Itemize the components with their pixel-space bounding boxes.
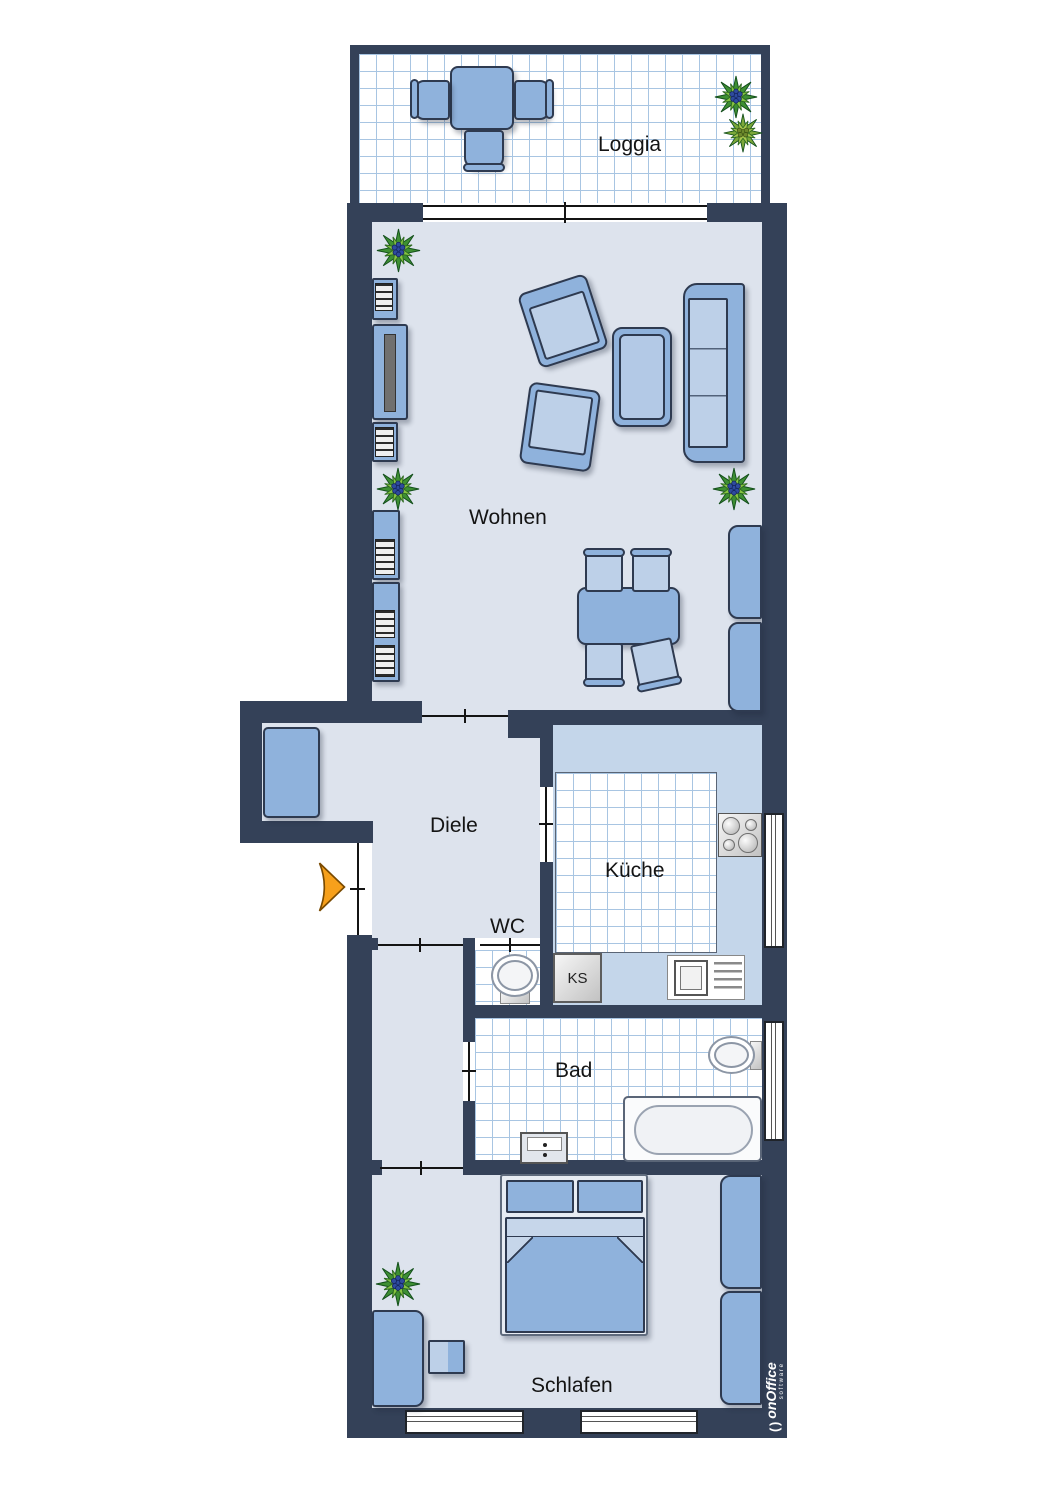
measure-tick <box>420 1161 422 1175</box>
room-label-schlafen: Schlafen <box>531 1374 613 1398</box>
dining-table <box>577 587 680 645</box>
toilet-bowl <box>714 1042 749 1068</box>
stove-burner <box>745 819 757 831</box>
stove-burner <box>738 833 758 853</box>
onoffice-logo-icon: ( ) <box>767 1423 782 1432</box>
measure-tick <box>564 202 566 223</box>
sofa <box>683 283 745 463</box>
pillow <box>577 1180 643 1213</box>
coffee-table <box>612 327 672 427</box>
plant-icon <box>722 112 764 154</box>
pillow <box>506 1180 574 1213</box>
window-bad <box>764 1021 784 1141</box>
onoffice-logo-tagline: software <box>779 1362 785 1419</box>
armchair <box>519 381 602 472</box>
shelf-contents <box>375 283 393 311</box>
wall-segment <box>360 938 378 950</box>
bed-sheet-strip <box>507 1219 643 1237</box>
room-label-wc: WC <box>490 915 525 939</box>
measure-tick <box>419 938 421 952</box>
armchair-seat <box>528 389 594 455</box>
sink-drainer <box>714 962 742 994</box>
floorplan-canvas: KS <box>0 0 1060 1500</box>
wall-segment <box>707 203 787 222</box>
loggia-chair <box>464 130 504 168</box>
shelf-contents <box>375 610 395 638</box>
washbasin <box>520 1132 568 1164</box>
bathtub-inner <box>634 1105 753 1155</box>
faucet-dot <box>543 1143 547 1147</box>
wall-segment <box>540 862 553 1005</box>
measure-tick <box>462 1070 476 1072</box>
measure-tick <box>350 888 365 890</box>
tv-sideboard <box>372 324 408 420</box>
shelf-contents <box>375 539 395 575</box>
wall-segment <box>347 935 372 1408</box>
toilet <box>708 1036 755 1074</box>
wall-segment <box>347 203 372 701</box>
wall-segment <box>540 710 787 725</box>
chair-back <box>410 79 419 119</box>
room-label-diele: Diele <box>430 814 478 838</box>
room-label-loggia: Loggia <box>598 133 661 157</box>
toilet <box>491 954 539 997</box>
chair-back <box>630 548 672 557</box>
wall-cabinet <box>728 622 762 712</box>
onoffice-logo-name: onOffice <box>764 1362 778 1419</box>
wall-cabinet <box>728 525 762 619</box>
stove-burner <box>723 839 735 851</box>
wardrobe <box>720 1175 762 1289</box>
chair-back <box>583 678 625 687</box>
shelf-contents <box>375 427 394 457</box>
wall-segment <box>463 938 475 1042</box>
sofa-seat <box>688 298 728 448</box>
plant-icon <box>375 227 422 274</box>
wardrobe <box>720 1291 762 1405</box>
chair-back <box>463 163 505 172</box>
fridge-label: KS <box>567 970 587 987</box>
window-kueche <box>764 813 784 948</box>
dining-chair <box>632 552 670 592</box>
faucet-dot <box>543 1153 547 1157</box>
wall-segment <box>463 1005 787 1018</box>
dining-chair <box>630 637 680 689</box>
measure-tick <box>539 823 553 825</box>
room-label-bad: Bad <box>555 1059 592 1083</box>
armchair-seat <box>528 290 600 360</box>
wall-segment <box>350 45 359 203</box>
wall-segment <box>350 45 770 54</box>
fridge: KS <box>553 953 602 1003</box>
wall-segment <box>463 1160 787 1175</box>
mattress <box>505 1217 645 1333</box>
stove <box>718 813 762 857</box>
plant-icon <box>375 466 421 512</box>
wall-segment <box>540 725 553 787</box>
shelf <box>372 582 400 682</box>
room-label-wohnen: Wohnen <box>469 506 547 530</box>
loggia-table <box>450 66 514 130</box>
window-schlafen-right <box>580 1410 698 1434</box>
measure-tick <box>509 938 511 952</box>
wall-segment <box>240 821 373 843</box>
desk <box>372 1310 424 1407</box>
plant-icon <box>374 1260 422 1308</box>
bathtub <box>623 1096 762 1162</box>
onoffice-logo: ( ) onOffice software <box>760 1322 788 1432</box>
window-schlafen-left <box>405 1410 524 1434</box>
entrance-arrow-icon <box>316 860 348 914</box>
sheet-fold <box>617 1237 643 1263</box>
kitchen-sink-unit <box>667 955 745 1000</box>
tv-screen <box>384 334 396 412</box>
shelf-contents <box>375 645 395 677</box>
desk-chair <box>428 1340 465 1374</box>
loggia-chair <box>514 80 550 120</box>
hall-wardrobe <box>263 727 320 818</box>
floor-corridor <box>372 938 463 1175</box>
shelf <box>372 510 400 580</box>
measure-tick <box>464 709 466 723</box>
wall-segment <box>463 1101 475 1162</box>
shelf <box>372 422 398 462</box>
floor-loggia <box>359 54 761 203</box>
chair-back <box>583 548 625 557</box>
coffee-table-top <box>619 334 665 420</box>
room-label-kueche: Küche <box>605 859 665 883</box>
loggia-chair <box>414 80 450 120</box>
sink-basin-inner <box>680 966 702 990</box>
plant-icon <box>711 466 757 512</box>
wall-segment <box>240 701 422 723</box>
shelf <box>372 278 398 320</box>
dining-chair <box>585 552 623 592</box>
chair-back <box>545 79 554 119</box>
sink-basin <box>674 960 708 996</box>
bed-frame <box>500 1174 648 1336</box>
dining-chair <box>585 643 623 683</box>
sheet-fold <box>507 1237 533 1263</box>
toilet-bowl <box>497 960 533 991</box>
stove-burner <box>722 817 740 835</box>
